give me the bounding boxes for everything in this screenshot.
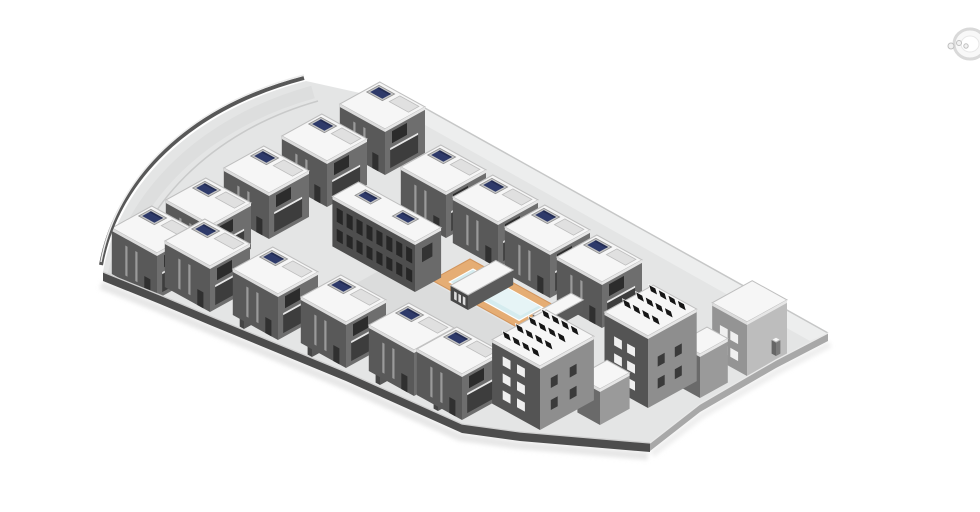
window-slit (458, 294, 461, 304)
window-slit (424, 190, 426, 221)
entry-door (197, 289, 203, 308)
window-slit (430, 367, 432, 398)
window-slit (125, 246, 127, 277)
site-model-render (0, 0, 980, 512)
entry-door (485, 245, 491, 264)
entry-door (537, 275, 543, 294)
window-slit (528, 250, 530, 281)
window-slit (256, 292, 258, 323)
window-slit (135, 251, 137, 282)
entry-door (256, 216, 262, 235)
3d-model-viewport[interactable] (0, 0, 980, 512)
window-slit (463, 296, 466, 306)
window-slit (476, 220, 478, 251)
entry-door (265, 317, 271, 336)
window-slit (324, 320, 326, 351)
gate-pillar (772, 337, 781, 356)
entry-door (333, 345, 339, 364)
window-slit (518, 245, 520, 276)
window-slit (392, 348, 394, 379)
entry-door (401, 373, 407, 392)
window-slit (246, 287, 248, 318)
window-slit (466, 215, 468, 246)
window-slit (178, 259, 180, 290)
window-slit (314, 315, 316, 346)
entry-door (589, 305, 595, 324)
window-slit (188, 264, 190, 295)
window-slit (440, 372, 442, 403)
window-slit (414, 185, 416, 216)
entry-door (372, 152, 378, 171)
entry-door (449, 397, 455, 416)
entry-door (314, 184, 320, 203)
orbit-navigation-wheel-icon[interactable] (948, 29, 980, 59)
window-slit (454, 291, 457, 301)
window-slit (382, 343, 384, 374)
